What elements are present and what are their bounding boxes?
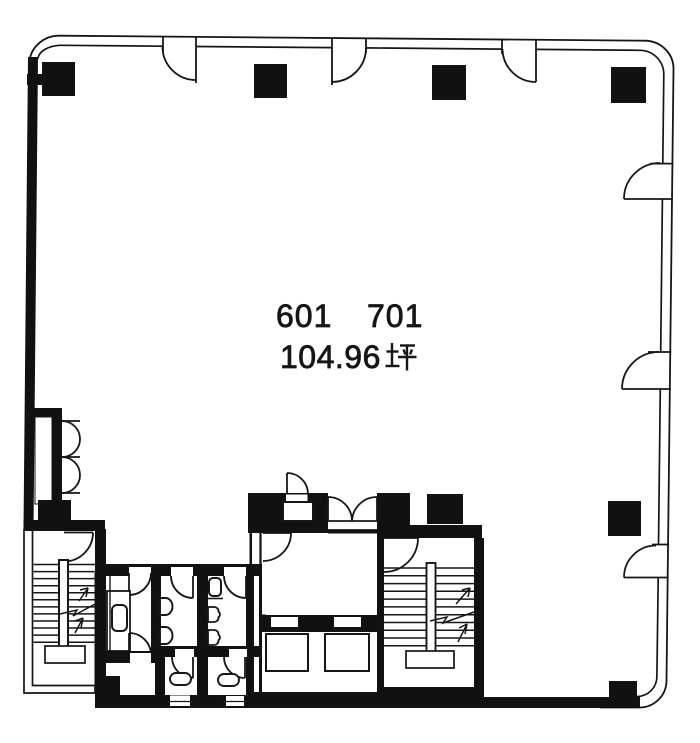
svg-text:701: 701 [367, 298, 423, 334]
svg-text:104.96: 104.96 [280, 339, 381, 375]
svg-text:601: 601 [276, 298, 332, 334]
